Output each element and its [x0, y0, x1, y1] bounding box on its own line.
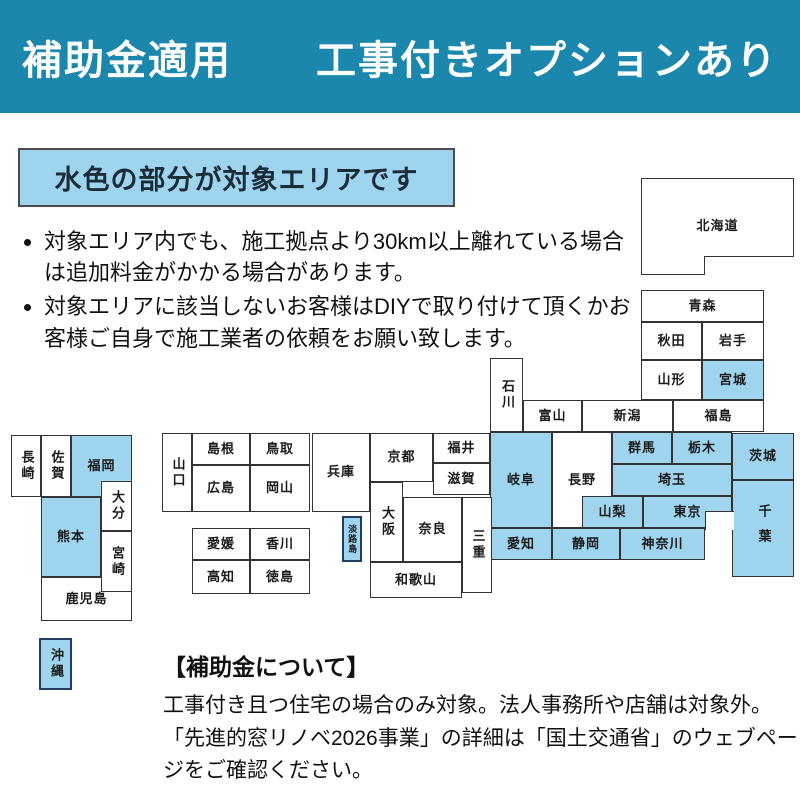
- prefecture-label: 滋賀: [447, 472, 475, 487]
- prefecture-label: 佐賀: [49, 450, 64, 482]
- prefecture-label: 三重: [470, 529, 485, 561]
- prefecture-label: 宮崎: [109, 546, 124, 578]
- prefecture-oita: 大分: [101, 481, 132, 531]
- prefecture-label: 大阪: [379, 506, 394, 538]
- prefecture-gunma: 群馬: [612, 432, 672, 464]
- prefecture-label: 鹿児島: [65, 592, 107, 607]
- note-item-distance: 対象エリア内でも、施工拠点より30km以上離れている場合は追加料金がかかる場合が…: [44, 226, 642, 288]
- prefecture-yamagata: 山形: [641, 360, 702, 400]
- prefecture-label: 岡山: [266, 481, 294, 496]
- note-item-diy: 対象エリアに該当しないお客様はDIYで取り付けて頂くかお客様ご自身で施工業者の依…: [44, 291, 642, 353]
- prefecture-label: 島根: [207, 442, 235, 457]
- prefecture-mie: 三重: [462, 497, 492, 593]
- prefecture-label: 静岡: [572, 537, 600, 552]
- prefecture-ibaraki: 茨城: [732, 433, 794, 480]
- prefecture-label: 鳥取: [266, 442, 294, 457]
- prefecture-label: 石川: [499, 379, 514, 411]
- prefecture-gifu: 岐阜: [490, 432, 552, 528]
- prefecture-label: 兵庫: [327, 465, 355, 480]
- prefecture-label: 香川: [266, 537, 294, 552]
- prefecture-kochi: 高知: [192, 560, 250, 594]
- prefecture-label: 山梨: [598, 505, 626, 520]
- prefecture-label: 神奈川: [641, 537, 683, 552]
- prefecture-shiga: 滋賀: [433, 463, 490, 495]
- prefecture-fukui: 福井: [433, 433, 490, 463]
- prefecture-fukushima: 福島: [673, 400, 764, 432]
- prefecture-label: 富山: [538, 409, 566, 424]
- prefecture-label: 北海道: [696, 219, 738, 234]
- prefecture-saitama: 埼玉: [612, 464, 732, 496]
- prefecture-label: 奈良: [418, 522, 446, 537]
- prefecture-saga: 佐賀: [41, 435, 71, 497]
- prefecture-label: 福井: [447, 441, 475, 456]
- prefecture-label: 京都: [387, 450, 415, 465]
- prefecture-label: 栃木: [688, 441, 716, 456]
- prefecture-hiroshima: 広島: [192, 465, 250, 512]
- prefecture-label: 徳島: [266, 570, 294, 585]
- prefecture-awajishima: 淡路島: [342, 516, 362, 562]
- notes-section: 対象エリア内でも、施工拠点より30km以上離れている場合は追加料金がかかる場合が…: [14, 226, 642, 357]
- prefecture-okinawa: 沖縄: [39, 638, 72, 690]
- prefecture-yamanashi: 山梨: [582, 496, 643, 528]
- prefecture-iwate: 岩手: [702, 322, 764, 360]
- prefecture-hyogo: 兵庫: [312, 433, 370, 512]
- prefecture-label: 山形: [657, 373, 685, 388]
- prefecture-tottori: 鳥取: [250, 433, 310, 465]
- prefecture-label: 高知: [207, 570, 235, 585]
- sea-patch-hokkaido-notch: [704, 256, 794, 275]
- prefecture-label: 福島: [704, 409, 732, 424]
- prefecture-label: 群馬: [628, 441, 656, 456]
- prefecture-label: 埼玉: [658, 473, 686, 488]
- legend-box: 水色の部分が対象エリアです: [18, 148, 455, 207]
- prefecture-label: 熊本: [57, 530, 85, 545]
- prefecture-label: 広島: [207, 481, 235, 496]
- prefecture-kanagawa: 神奈川: [620, 528, 705, 560]
- prefecture-niigata: 新潟: [582, 400, 673, 432]
- prefecture-label: 長野: [568, 473, 596, 488]
- legend-label: 水色の部分が対象エリアです: [55, 158, 419, 197]
- prefecture-nara: 奈良: [403, 497, 462, 562]
- prefecture-label: 和歌山: [395, 573, 437, 588]
- prefecture-label: 宮城: [719, 373, 747, 388]
- prefecture-label: 千葉: [756, 504, 771, 554]
- prefecture-wakayama: 和歌山: [370, 562, 462, 598]
- prefecture-osaka: 大阪: [370, 482, 403, 562]
- prefecture-aomori: 青森: [641, 290, 764, 322]
- prefecture-label: 長崎: [19, 450, 34, 482]
- prefecture-ehime: 愛媛: [192, 528, 250, 560]
- sea-patch-tokyo-bay: [705, 511, 734, 530]
- footer-body: 工事付き且つ住宅の場合のみ対象。法人事務所や店舗は対象外。「先進的窓リノベ202…: [163, 690, 800, 788]
- prefecture-label: 淡路島: [347, 524, 357, 554]
- footer-note: 【補助金について】 工事付き且つ住宅の場合のみ対象。法人事務所や店舗は対象外。「…: [163, 648, 800, 788]
- prefecture-chiba: 千葉: [732, 480, 794, 577]
- prefecture-label: 大分: [109, 490, 124, 522]
- prefecture-label: 岐阜: [507, 473, 535, 488]
- prefecture-kyoto: 京都: [370, 433, 433, 482]
- prefecture-label: 新潟: [613, 409, 641, 424]
- prefecture-tochigi: 栃木: [672, 432, 732, 464]
- prefecture-tokushima: 徳島: [250, 560, 310, 594]
- prefecture-kumamoto: 熊本: [41, 497, 101, 577]
- prefecture-ishikawa: 石川: [490, 358, 523, 432]
- prefecture-toyama: 富山: [523, 400, 582, 432]
- prefecture-yamaguchi: 山口: [162, 433, 192, 512]
- prefecture-label: 秋田: [657, 334, 685, 349]
- prefecture-label: 福岡: [87, 459, 115, 474]
- prefecture-label: 沖縄: [48, 648, 63, 680]
- prefecture-label: 青森: [688, 299, 716, 314]
- prefecture-miyagi: 宮城: [702, 360, 764, 400]
- prefecture-shizuoka: 静岡: [552, 528, 620, 560]
- footer-title: 【補助金について】: [163, 648, 800, 682]
- prefecture-shimane: 島根: [192, 433, 250, 465]
- prefecture-label: 東京: [673, 505, 701, 520]
- prefecture-aichi: 愛知: [490, 528, 552, 560]
- prefecture-okayama: 岡山: [250, 465, 310, 512]
- notes-list: 対象エリア内でも、施工拠点より30km以上離れている場合は追加料金がかかる場合が…: [14, 226, 642, 354]
- prefecture-label: 愛知: [507, 537, 535, 552]
- prefecture-akita: 秋田: [641, 322, 702, 360]
- prefecture-label: 岩手: [719, 334, 747, 349]
- prefecture-label: 山口: [170, 457, 185, 489]
- prefecture-label: 茨城: [749, 449, 777, 464]
- prefecture-label: 愛媛: [207, 537, 235, 552]
- prefecture-nagasaki: 長崎: [11, 435, 41, 497]
- prefecture-kagawa: 香川: [250, 528, 310, 560]
- prefecture-miyazaki: 宮崎: [101, 531, 132, 592]
